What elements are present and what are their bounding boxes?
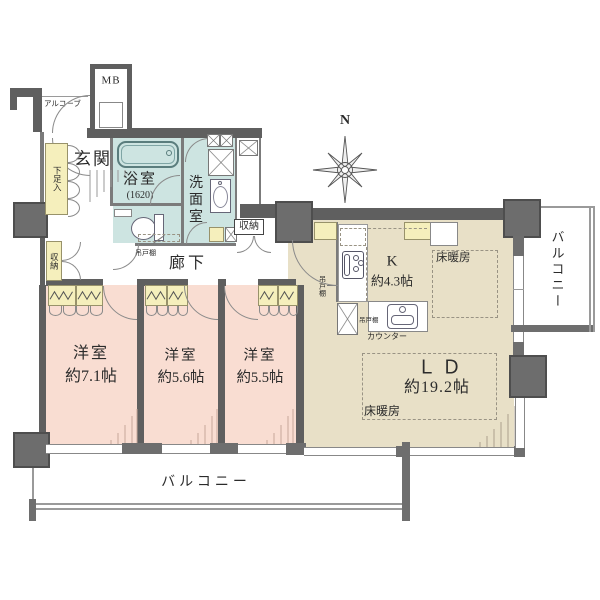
wall-bath-wash: [181, 138, 184, 245]
vanity-basin: [213, 186, 228, 208]
living-window-band: [304, 447, 525, 456]
closet-door: [90, 306, 103, 316]
stove-grill: [344, 254, 350, 276]
kitchen-area-label: 約4.3帖: [371, 275, 413, 288]
kitchen-cupboard-dashed-vert: [366, 247, 367, 301]
window-sash: [286, 443, 306, 455]
pillar-corridor: [275, 201, 313, 243]
closet-door: [49, 306, 62, 316]
bathroom-size-label: (1620): [127, 191, 154, 201]
vanity-faucet: [218, 181, 222, 185]
closet-door: [157, 306, 168, 316]
balcony-east-rail: [589, 206, 591, 332]
storage-top-door-arc: [237, 236, 254, 253]
bedroom1-closet: [48, 285, 76, 306]
floor-heating-living-label: 床暖房: [364, 405, 400, 417]
window-sash: [122, 443, 162, 454]
wall-alcove-tab: [10, 97, 17, 110]
bedroom3-area-label: 約5.5帖: [236, 371, 283, 386]
balcony-rail-bottom: [32, 508, 403, 510]
wall-entry-left: [40, 132, 44, 202]
kitchen-entry-storage: [314, 222, 337, 240]
sink-basin: [391, 315, 414, 325]
window-shade-lines: [188, 406, 218, 446]
compass-rose-icon: [308, 106, 382, 206]
hall-storage-door-arc: [62, 261, 81, 280]
bedroom3-label: 洋室: [244, 349, 277, 364]
balcony-rail-bottom: [32, 503, 403, 505]
cupboard-corridor-label: 吊戸棚: [135, 250, 156, 257]
storage-top-label: 収納: [239, 222, 259, 232]
counter-label: カウンター: [367, 333, 407, 341]
wall-right-outer: [259, 138, 261, 206]
wall-stub: [513, 236, 524, 256]
washroom-lower-storage: [209, 227, 224, 242]
living-dining-label: ＬＤ: [417, 359, 467, 378]
closet-door: [269, 306, 279, 316]
stove-burner: [358, 260, 364, 266]
kitchen-label: K: [387, 255, 398, 270]
floor-heating-kitchen-label: 床暖房: [436, 253, 471, 265]
bedroom3-closet: [258, 285, 278, 306]
closet-door: [279, 306, 289, 316]
bedroom3-closet: [278, 285, 298, 306]
stove-burner: [353, 266, 359, 272]
balcony-east-label: バルコニー: [551, 230, 564, 310]
shoe-cabinet-door: [68, 181, 80, 199]
wall-bedroom1-2: [137, 285, 144, 448]
balcony-rail-end: [29, 499, 36, 521]
pillar-west-upper: [13, 202, 48, 238]
balcony-divider: [511, 325, 594, 332]
corridor-label: 廊下: [169, 256, 207, 272]
wall-west-mid: [40, 238, 45, 285]
toilet-shelf: [114, 209, 132, 217]
shoe-cabinet-label: 下足入: [53, 166, 62, 192]
meter-box-label: MB: [101, 76, 120, 87]
wall-stub: [513, 342, 524, 356]
closet-door: [178, 306, 188, 316]
bathroom-label: 浴室: [123, 173, 157, 188]
storage-strip-hatch: [239, 140, 258, 156]
bathtub-drain: [166, 150, 172, 156]
closet-door: [146, 306, 157, 316]
bedroom-window-band: [46, 444, 296, 454]
bedroom1-label: 洋室: [73, 346, 109, 362]
closet-door: [168, 306, 178, 316]
wall-wash-right: [235, 138, 237, 222]
balcony-east-rail: [593, 206, 595, 332]
sink-faucet: [399, 306, 406, 313]
window-shade-lines: [108, 406, 138, 446]
balcony-end-wall: [402, 442, 410, 521]
living-east-window: [515, 398, 525, 448]
closet-door: [259, 306, 269, 316]
washroom-upper-cabinet: [220, 134, 233, 147]
floor-plan: MB アルコーブ 玄関 下足入 浴室 (1620) 洗面室 収納: [0, 0, 600, 600]
kitchen-white-cabinet: [430, 222, 458, 246]
kitchen-cupboard-dashed: [340, 228, 366, 246]
toilet-door-arc: [113, 244, 139, 270]
wall-bedroom2-3: [218, 285, 225, 448]
pillar-east: [509, 355, 547, 398]
window-tick: [513, 289, 524, 290]
window-shade-lines: [264, 406, 294, 446]
closet-door: [63, 306, 76, 316]
closet-door: [76, 306, 89, 316]
bedroom2-closet: [145, 285, 167, 306]
living-dining-area-label: 約19.2帖: [404, 380, 470, 396]
storage-top-door-arc: [254, 236, 271, 253]
balcony-south-label: バルコニー: [161, 476, 251, 490]
pillar-northeast: [503, 199, 541, 238]
hall-storage-left-label: 収納: [50, 253, 59, 270]
hall-storage-door-arc: [62, 242, 81, 261]
cupboard-kitchen-sink-label: 吊戸棚: [359, 318, 379, 325]
refrigerator-space: [337, 303, 358, 335]
kitchen-cupboard-dashed-line: [368, 228, 427, 229]
bedroom1-closet: [76, 285, 103, 306]
bedroom2-area-label: 約5.6帖: [157, 371, 204, 386]
washroom-label: 洗面室: [187, 175, 201, 226]
bedroom1-area-label: 約7.1帖: [65, 369, 117, 385]
wall-alcove-side: [33, 88, 42, 132]
wall-living-top: [313, 208, 503, 220]
balcony-east-top: [541, 206, 594, 208]
shoe-cabinet-door: [68, 199, 80, 217]
pillar-west-lower: [13, 432, 50, 468]
meter-box-inner: [99, 102, 123, 128]
bedroom2-label: 洋室: [165, 349, 198, 364]
washing-machine-space: [208, 149, 234, 176]
washroom-upper-cabinet: [207, 134, 220, 147]
kitchen-wall-storage: [404, 222, 432, 240]
closet-door: [289, 306, 298, 316]
wall-bedroom1-left: [39, 285, 46, 448]
window-sash: [210, 443, 238, 454]
